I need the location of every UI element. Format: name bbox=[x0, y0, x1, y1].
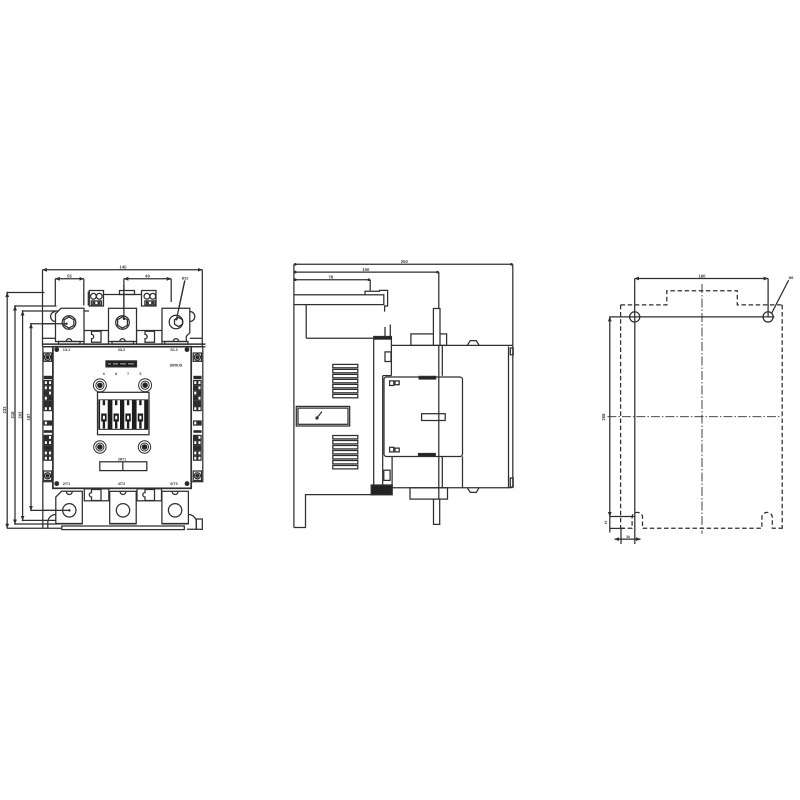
svg-text:145: 145 bbox=[120, 265, 128, 270]
svg-text:218: 218 bbox=[10, 411, 15, 419]
svg-text:3/L2: 3/L2 bbox=[118, 348, 125, 352]
svg-text:187: 187 bbox=[26, 413, 31, 421]
svg-text:202: 202 bbox=[17, 411, 22, 419]
svg-text:6/T3: 6/T3 bbox=[170, 482, 177, 486]
svg-text:250: 250 bbox=[401, 259, 409, 264]
svg-text:160: 160 bbox=[699, 273, 707, 278]
svg-text:3RT1: 3RT1 bbox=[118, 457, 126, 461]
svg-text:5: 5 bbox=[139, 372, 141, 376]
svg-text:Ø15: Ø15 bbox=[182, 277, 189, 281]
svg-text:4/T2: 4/T2 bbox=[118, 482, 125, 486]
svg-text:49: 49 bbox=[145, 274, 150, 279]
svg-text:1/L1: 1/L1 bbox=[63, 348, 70, 352]
svg-text:7: 7 bbox=[127, 372, 129, 376]
svg-text:2/T1: 2/T1 bbox=[63, 482, 70, 486]
svg-text:15: 15 bbox=[604, 521, 608, 525]
svg-text:8: 8 bbox=[115, 372, 117, 376]
svg-text:Ø6: Ø6 bbox=[789, 276, 794, 280]
svg-text:208: 208 bbox=[601, 413, 606, 421]
svg-text:55: 55 bbox=[67, 274, 72, 279]
svg-text:5/L3: 5/L3 bbox=[170, 348, 177, 352]
svg-text:150: 150 bbox=[362, 267, 370, 272]
svg-text:78: 78 bbox=[328, 275, 333, 280]
svg-text:30: 30 bbox=[626, 535, 630, 539]
svg-text:SIRIUS: SIRIUS bbox=[170, 363, 183, 367]
svg-text:6: 6 bbox=[103, 372, 105, 376]
svg-text:233: 233 bbox=[2, 406, 7, 414]
